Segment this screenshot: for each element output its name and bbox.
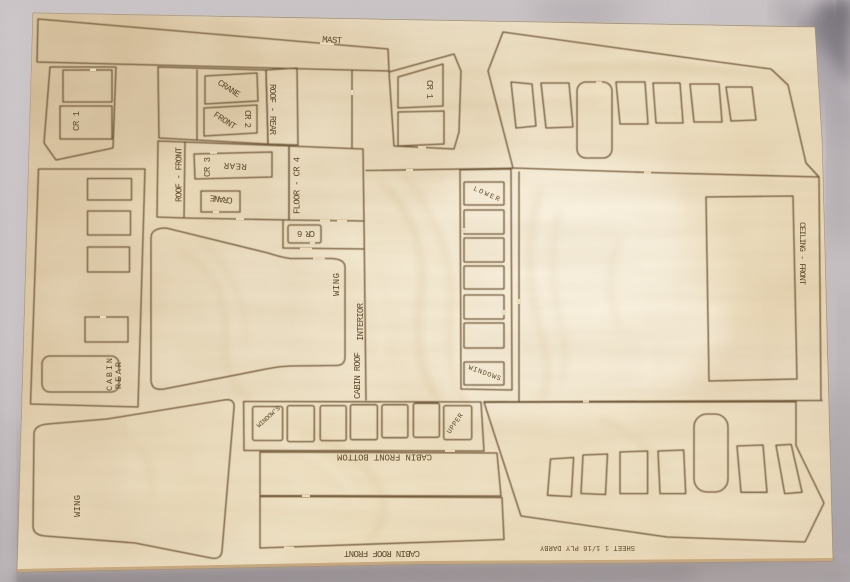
svg-text:INTERIOR: INTERIOR xyxy=(356,302,366,341)
svg-text:FLOOR - CR 4: FLOOR - CR 4 xyxy=(293,157,303,214)
svg-text:SHEET 1 1/16 PLY DARBY: SHEET 1 1/16 PLY DARBY xyxy=(539,543,635,551)
svg-text:CEILING - FRONT: CEILING - FRONT xyxy=(797,222,807,285)
svg-text:CABIN ROOF: CABIN ROOF xyxy=(353,352,363,399)
svg-text:CR 6: CR 6 xyxy=(297,228,315,238)
svg-text:MAST: MAST xyxy=(322,35,343,46)
svg-text:CR 3: CR 3 xyxy=(203,157,213,177)
svg-text:WING: WING xyxy=(73,495,83,517)
svg-text:CR 1: CR 1 xyxy=(72,111,82,131)
svg-text:REAR: REAR xyxy=(223,160,247,171)
svg-text:CR 1: CR 1 xyxy=(424,80,434,99)
svg-text:CR 2: CR 2 xyxy=(242,110,252,128)
svg-text:ROOF - REAR: ROOF - REAR xyxy=(267,84,277,136)
svg-text:WING: WING xyxy=(332,273,342,296)
svg-text:CABIN ROOF FRONT: CABIN ROOF FRONT xyxy=(343,548,420,558)
svg-text:CABIN FRONT BOTTOM: CABIN FRONT BOTTOM xyxy=(337,452,432,462)
svg-text:ROOF - FRONT: ROOF - FRONT xyxy=(175,146,185,202)
